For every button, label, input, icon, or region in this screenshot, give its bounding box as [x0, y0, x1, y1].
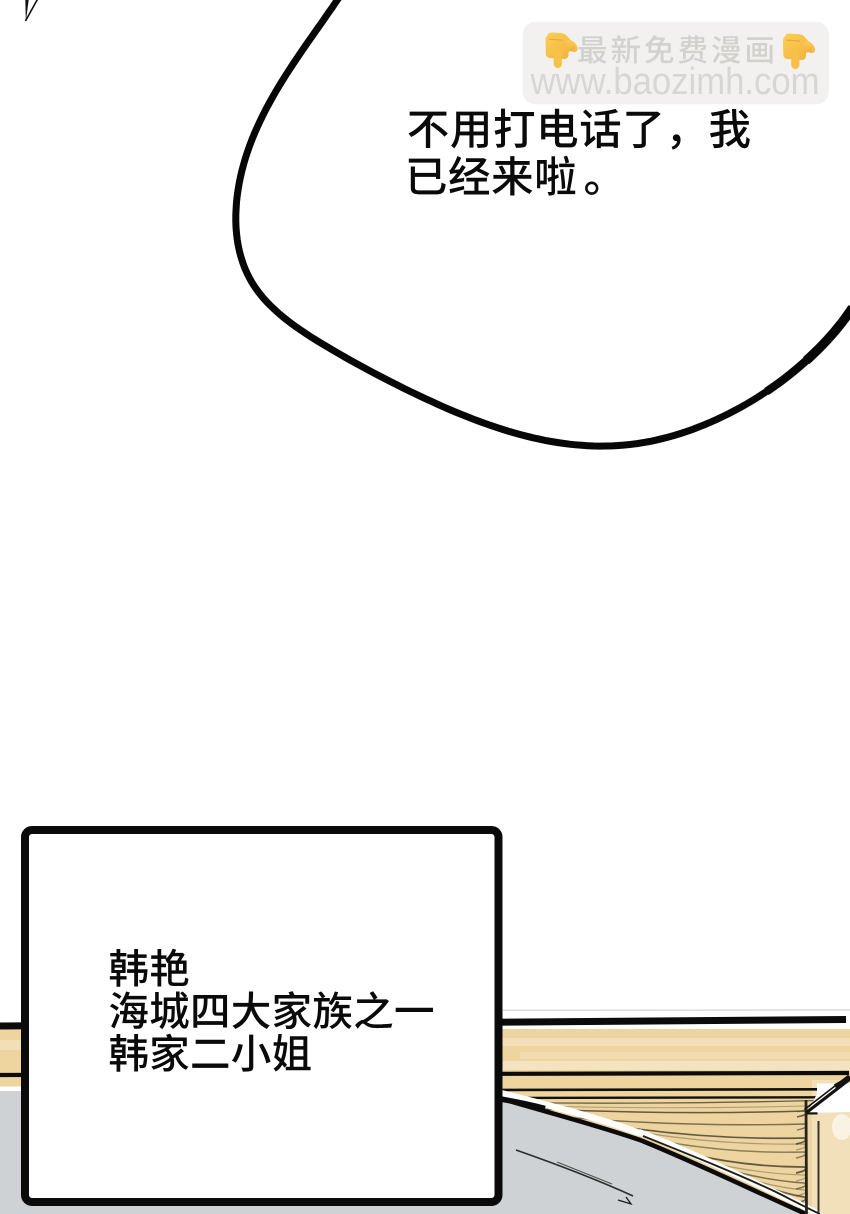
- svg-text:www.baozimh.com: www.baozimh.com: [530, 61, 820, 103]
